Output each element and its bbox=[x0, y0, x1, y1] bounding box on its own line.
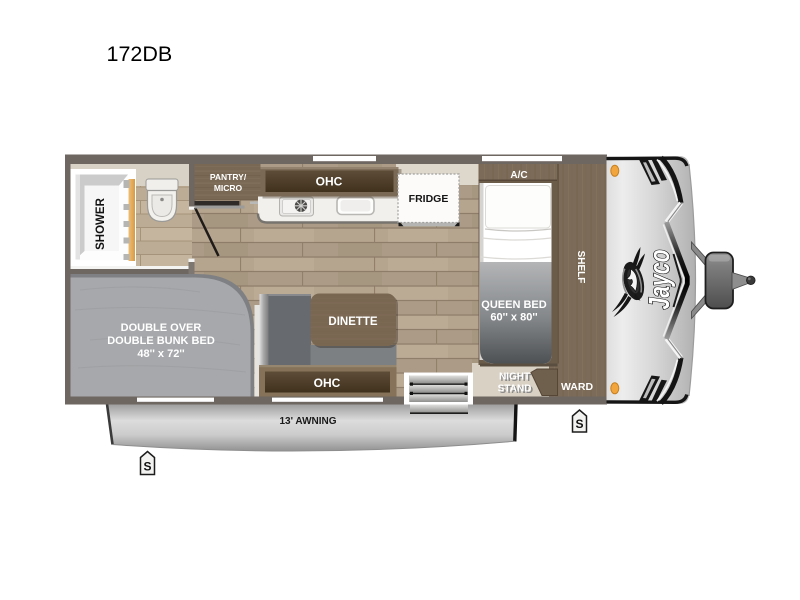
svg-text:S: S bbox=[143, 460, 151, 474]
svg-text:13' AWNING: 13' AWNING bbox=[279, 416, 336, 427]
svg-text:QUEEN BED: QUEEN BED bbox=[481, 299, 546, 311]
svg-text:NIGHT: NIGHT bbox=[499, 372, 530, 383]
svg-text:60'' x 80'': 60'' x 80'' bbox=[490, 312, 538, 324]
svg-text:WARD: WARD bbox=[561, 381, 593, 393]
svg-text:Jayco: Jayco bbox=[644, 250, 676, 310]
svg-text:OHC: OHC bbox=[314, 376, 341, 390]
svg-text:DOUBLE OVER: DOUBLE OVER bbox=[121, 322, 202, 334]
svg-text:MICRO: MICRO bbox=[214, 183, 243, 193]
svg-text:S: S bbox=[575, 417, 583, 431]
svg-text:SHOWER: SHOWER bbox=[95, 197, 107, 249]
svg-text:48'' x 72'': 48'' x 72'' bbox=[137, 348, 185, 360]
svg-text:SHELF: SHELF bbox=[575, 251, 586, 284]
svg-text:172DB: 172DB bbox=[107, 42, 173, 66]
svg-text:DOUBLE BUNK BED: DOUBLE BUNK BED bbox=[107, 335, 215, 347]
svg-text:STAND: STAND bbox=[498, 384, 532, 395]
svg-text:OHC: OHC bbox=[316, 175, 343, 189]
svg-text:DINETTE: DINETTE bbox=[328, 316, 378, 328]
svg-text:PANTRY/: PANTRY/ bbox=[210, 172, 247, 182]
svg-text:FRIDGE: FRIDGE bbox=[409, 193, 449, 205]
svg-text:A/C: A/C bbox=[510, 170, 527, 181]
